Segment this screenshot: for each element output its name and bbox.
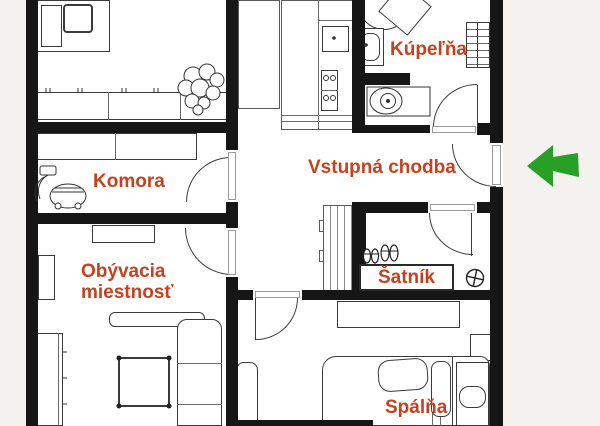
mattress-divider [452,356,453,426]
towel-radiator-icon [466,22,490,68]
wall [226,420,373,426]
wall [352,125,430,133]
wardrobe-handle [319,250,324,262]
room-label-satnik: Šatník [378,267,435,288]
room-label-kupelna: Kúpeľňa [390,39,467,60]
hall-closet [238,0,280,109]
wall [226,290,253,300]
wall [26,213,238,224]
door-threshold-living [228,230,236,275]
wall [352,202,428,213]
pantry-shelf [37,133,197,160]
bedroom-wardrobe [236,362,258,426]
door-leaf-bathroom [477,85,478,127]
kitchen-counter-line [281,121,353,122]
bedroom-desk [337,301,460,328]
cabinet-row [37,92,227,120]
door-threshold-bathroom [432,126,476,133]
room-label-vstupna-chodba: Vstupná chodba [308,157,456,178]
room-label-komora: Komora [93,171,165,192]
sofa-chaise [177,319,222,426]
wall [490,187,503,426]
coffee-table [118,357,170,407]
cabinet-divider [180,92,181,120]
floorplan: Kúpeľňa Vstupná chodba Komora Obývacia m… [0,0,600,426]
side-shelf [38,255,55,300]
wall [26,122,238,133]
door-threshold-satnik [430,204,475,211]
wardrobe-handle [319,220,324,232]
tv-cabinet [37,333,63,426]
kitchen-counter-line [281,115,353,116]
sofa-cushion-line [177,363,222,364]
chair [63,4,93,33]
wall-wc-nook [365,73,410,85]
room-label-line2: miestnosť [81,282,174,303]
door-leaf-satnik [471,213,472,256]
wall-shelf [92,225,155,243]
room-label-line1: Obývacia [81,261,174,282]
kitchen-counter-line [318,20,353,21]
wall [490,0,503,143]
wall [302,290,490,300]
room-label-spalna: Spálňa [385,397,447,418]
wardrobe-box: Šatník [359,264,454,291]
pantry-shelf-divider [115,133,116,160]
radiator-rail [477,22,478,68]
tv-cabinet-line [58,333,59,426]
desk-cabinet [41,5,62,47]
door-leaf-bedroom [255,298,256,340]
cabinet-divider [108,92,109,120]
kitchen-sink-icon [322,26,349,52]
crib-pillow [459,386,486,408]
door-threshold-komora [228,152,236,200]
door-threshold-bedroom [255,291,300,298]
stove-divider [321,90,338,91]
wall [477,202,490,213]
built-in-wardrobe [323,205,353,292]
pillow [377,357,429,392]
sofa-cushion-line [177,404,222,405]
arrow-left-icon [527,145,579,187]
room-label-obyvacia-miestnost: Obývacia miestnosť [81,261,174,303]
wall [477,123,491,135]
door-threshold-entrance [492,145,501,185]
wall [352,0,365,133]
